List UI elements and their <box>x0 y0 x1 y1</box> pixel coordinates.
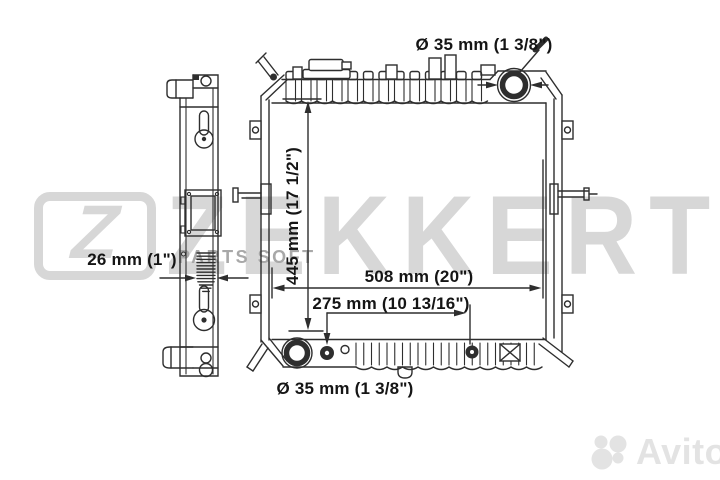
top-tab-3 <box>445 55 456 79</box>
side-cap-screw <box>201 76 211 86</box>
filler-cap <box>293 60 351 80</box>
label-bottom-diameter: Ø 35 mm (1 3/8") <box>263 379 427 399</box>
label-top-diameter: Ø 35 mm (1 3/8") <box>404 35 564 55</box>
right-pin-bracket <box>550 184 597 214</box>
top-tab-1 <box>386 65 397 79</box>
side-core-hatch <box>197 253 215 291</box>
side-outlet-neck <box>163 347 193 368</box>
left-pin-bracket <box>233 184 271 214</box>
bottom-clamp <box>500 344 520 361</box>
top-tab-2 <box>429 58 441 79</box>
label-overall-width: 508 mm (20") <box>337 267 501 287</box>
radiator-technical-drawing <box>0 0 720 480</box>
drain-tube <box>247 344 268 371</box>
overflow-tube <box>256 53 278 81</box>
side-filler-neck <box>167 80 193 98</box>
side-view <box>163 75 221 377</box>
label-core-height: 445 mm (17 1/2") <box>283 131 303 301</box>
outlet-port <box>282 338 312 368</box>
radiator-catalog-image: Z ZEKKERT PARTS SOFT Avito <box>0 0 720 480</box>
label-port-spacing: 275 mm (10 13/16") <box>299 294 483 314</box>
label-core-thickness: 26 mm (1") <box>84 250 180 270</box>
